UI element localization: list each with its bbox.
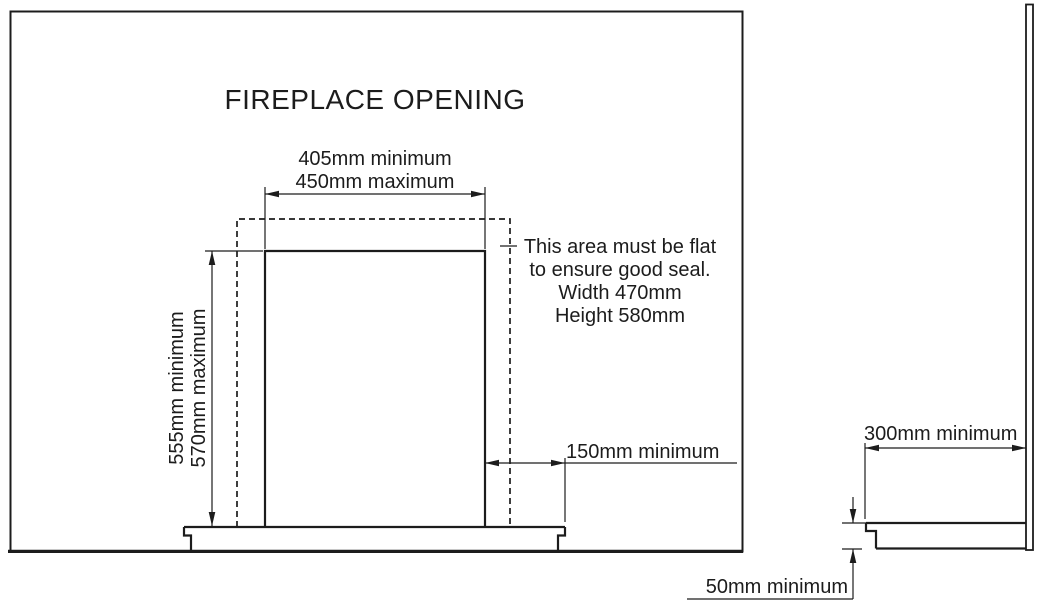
- height-dimension: [205, 251, 263, 526]
- depth-300-label: 300mm minimum: [864, 423, 1017, 446]
- hearth-side-profile: [866, 523, 1026, 549]
- seal-note-line-4: Height 580mm: [505, 305, 735, 328]
- seal-note-text: This area must be flat to ensure good se…: [505, 236, 735, 328]
- thickness-50-label: 50mm minimum: [680, 576, 848, 599]
- height-dim-max: 570mm maximum: [188, 233, 210, 543]
- hearth-front-profile: [184, 527, 565, 550]
- depth-dimension-300: [865, 443, 1026, 519]
- seal-note-line-2: to ensure good seal.: [505, 259, 735, 282]
- dim-arrowhead: [551, 460, 565, 467]
- dim-arrowhead: [850, 509, 857, 523]
- clearance-dimension-150: [485, 458, 737, 522]
- width-dimension: [265, 187, 485, 249]
- height-dimension-label: 555mm minimum 570mm maximum: [166, 233, 210, 543]
- seal-note-line-3: Width 470mm: [505, 282, 735, 305]
- side-wall: [1026, 5, 1033, 551]
- dim-arrowhead: [485, 460, 499, 467]
- height-dim-min: 555mm minimum: [166, 233, 188, 543]
- clearance-150-label: 150mm minimum: [566, 441, 719, 464]
- seal-area-dashed-outline: [237, 219, 510, 527]
- technical-drawing-page: FIREPLACE OPENING 405mm minimum 450mm ma…: [0, 0, 1041, 604]
- width-dim-min: 405mm minimum: [255, 148, 495, 171]
- width-dimension-label: 405mm minimum 450mm maximum: [255, 148, 495, 194]
- opening-rectangle: [265, 251, 485, 527]
- width-dim-max: 450mm maximum: [255, 171, 495, 194]
- side-view: [687, 5, 1033, 600]
- seal-note-line-1: This area must be flat: [505, 236, 735, 259]
- page-title: FIREPLACE OPENING: [160, 84, 590, 116]
